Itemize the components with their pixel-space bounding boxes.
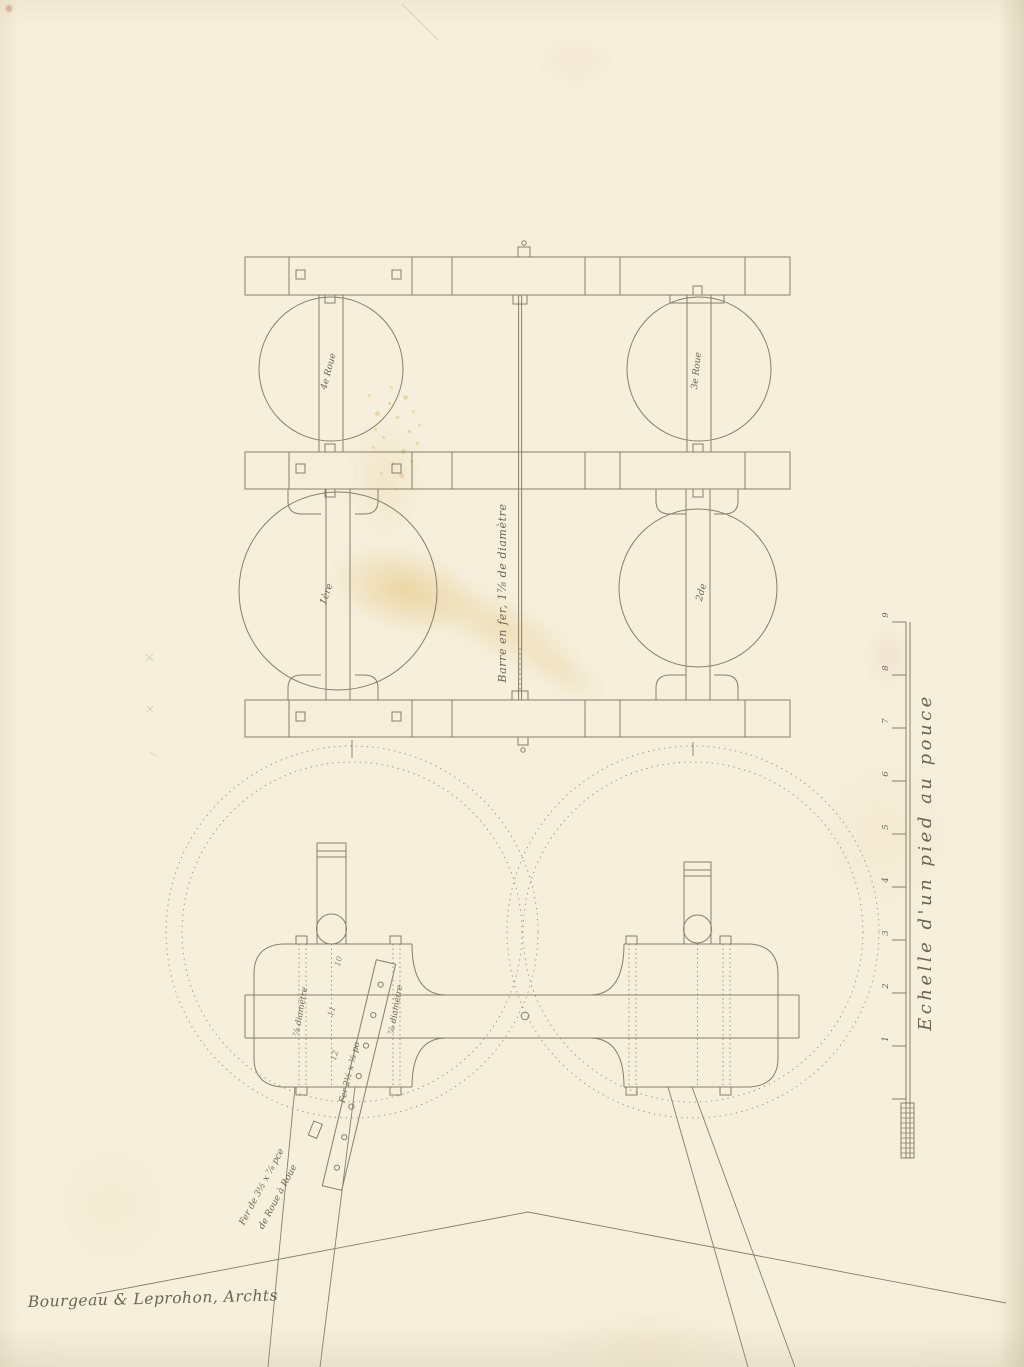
plan-view: 4e Roue 3e Roue 1ère 2de Barre en fer, 1… (239, 241, 790, 752)
pencil-mark-1: 10 (333, 955, 344, 967)
middle-beam (245, 444, 790, 514)
paper-creases (146, 4, 438, 756)
ruler-number-8: 8 (881, 665, 891, 671)
support-legs (268, 1087, 795, 1367)
pencil-mark-3: 12 (329, 1049, 340, 1061)
drawing-sheet: 4e Roue 3e Roue 1ère 2de Barre en fer, 1… (0, 0, 1024, 1367)
technical-drawing: 4e Roue 3e Roue 1ère 2de Barre en fer, 1… (0, 0, 1024, 1367)
iron-bar-label: Barre en fer, 1⅞ de diamètre (496, 503, 509, 683)
wheel-top-ticks (352, 740, 693, 758)
scale-label: Echelle d'un pied au pouce (915, 693, 936, 1032)
bolt-label-left: ⅞ diamètre (291, 986, 310, 1037)
wheel-1-label: 1ère (318, 582, 336, 607)
ruler-number-3: 3 (881, 930, 891, 935)
ruler-number-9: 9 (881, 612, 891, 618)
wheel-2-label: 2de (694, 582, 710, 603)
strap-label: Fer 2½ x ⅜ po (336, 1041, 362, 1105)
top-beam (245, 241, 790, 303)
bolt-dotted-lines (299, 944, 730, 1087)
ruler-number-4: 4 (881, 877, 891, 883)
central-iron-bar (512, 295, 528, 700)
ruler-number-7: 7 (881, 718, 891, 724)
right-wheel-dotted (507, 746, 879, 1118)
wheel-1-circle (239, 492, 437, 690)
elevation-view: ⅞ diamètre ⅞ diamètre Fer 2½ x ⅜ po Fer … (96, 740, 1006, 1367)
scale-ruler: 9 8 7 6 5 4 3 2 1 Echelle d'un pied au p… (881, 612, 936, 1158)
right-bearing-block (590, 936, 778, 1095)
right-journal-standard (684, 862, 712, 944)
signature: Bourgeau & Leprohon, Archts (27, 1286, 279, 1311)
ruler-number-2: 2 (881, 983, 891, 989)
wheel-3-label: 3e Roue (690, 352, 704, 390)
pencil-mark-2: 11 (326, 1005, 337, 1017)
bottom-beam (245, 675, 790, 752)
left-journal-standard (317, 843, 347, 944)
ruler-number-5: 5 (881, 824, 891, 829)
ruler-number-1: 1 (881, 1036, 891, 1041)
ruler-number-6: 6 (881, 771, 891, 777)
wheel-4-label: 4e Roue (319, 352, 339, 392)
